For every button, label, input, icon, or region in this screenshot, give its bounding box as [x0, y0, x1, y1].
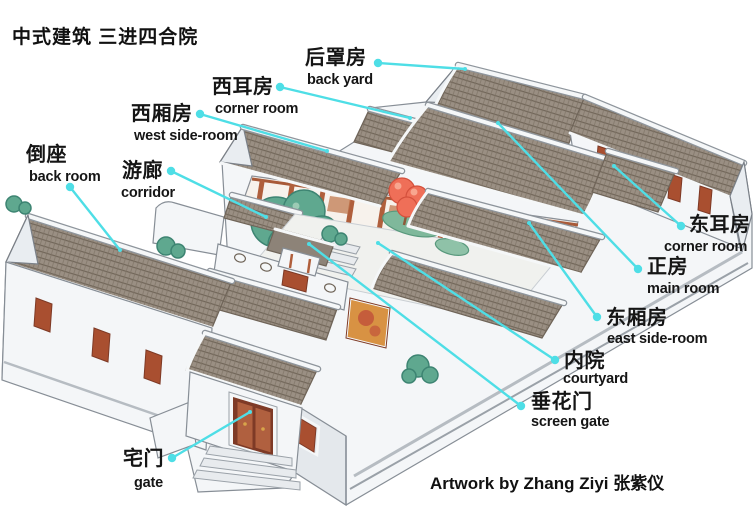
page-title: 中式建筑 三进四合院	[12, 22, 198, 49]
siheyuan-illustration	[0, 0, 753, 532]
artwork-credit: Artwork by Zhang Ziyi 张紫仪	[430, 469, 664, 494]
diagram-canvas: 后罩房back yard西耳房corner room西厢房west side-r…	[0, 0, 753, 532]
screen-gate-panel	[346, 298, 390, 348]
